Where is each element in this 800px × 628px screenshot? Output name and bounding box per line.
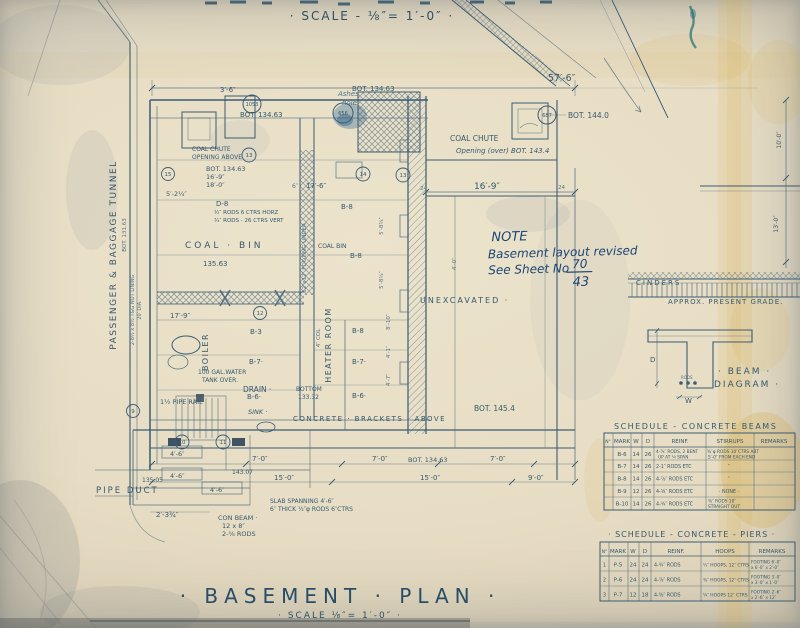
dim-57-6: 57′-6″ — [548, 73, 576, 84]
cell: ⅜″ HOOPS, 12″ CTRS — [703, 578, 749, 584]
cell: 1 — [603, 563, 606, 569]
dim-5-2: 5′-2¼″ — [166, 190, 187, 198]
cell: B-6 — [617, 452, 627, 458]
label-water1: 100 GAL.WATER — [198, 369, 246, 376]
bubble-9: 9 — [131, 409, 135, 415]
dim-4-6-b: 4′-6″ — [170, 472, 185, 480]
dim-17-9: 17′-9″ — [170, 312, 190, 320]
dim-5-8-a: 5′-8¾″ — [379, 217, 385, 235]
mark-b6-a: B-6· — [247, 393, 261, 401]
cell: B-8 — [617, 477, 627, 483]
elev-144-0: BOT. 144.0 — [568, 111, 609, 120]
cell: 4-¾″ RODS — [654, 563, 681, 569]
bubble-11: 11 — [220, 440, 227, 446]
cell: 24 — [642, 563, 649, 569]
cell: UP AT ¼ SPAN — [658, 455, 688, 461]
cell: FOOTING 2′-6″ — [751, 590, 781, 595]
piers-h-hoops: HOOPS — [715, 549, 735, 555]
piers-h-w: W — [630, 549, 636, 555]
elev-135-05: 135.05 — [142, 477, 163, 484]
label-4col: 4″ COL — [316, 328, 322, 347]
blueprint-sheet: 9 10 11 12 13 14 13 15 656 687 1053 · SC… — [0, 0, 800, 628]
label-conbeam2: 12 x 8″ — [222, 522, 245, 530]
basement-plan-drawing: 9 10 11 12 13 14 13 15 656 687 1053 · SC… — [0, 0, 800, 628]
elev-134-63-chain: BOT. 134.63 — [408, 456, 448, 464]
cell: ⅜″φ RODS 10″CTRS ABT — [707, 449, 759, 455]
dim-4-1: 4′-1″ — [386, 346, 392, 358]
piers-h-mark: MARK — [610, 549, 626, 555]
dim-24-a: 24 — [420, 186, 427, 192]
cell: · NONE · — [719, 489, 739, 495]
cell: 14 — [633, 464, 640, 470]
label-sink: SINK · — [248, 408, 267, 416]
beams-h-remarks: REMARKS — [761, 439, 788, 445]
beams-h-reinf: REINF. — [671, 439, 688, 445]
label-cinders: CINDERS — [636, 279, 681, 287]
label-slab2: 6″ THICK ½″φ RODS 6″CTRS — [270, 506, 353, 513]
label-brackets: CONCRETE · BRACKETS · ABOVE — [293, 415, 446, 423]
piers-row-2: 2 P-6 24 24 4-⅞″ RODS ⅜″ HOOPS, 12″ CTRS… — [603, 575, 781, 586]
elev-145-4: BOT. 145.4 — [474, 404, 515, 413]
elev-134-63-top: BOT. 134.63 — [352, 85, 395, 93]
label-coal-bin-small: COAL BIN — [318, 243, 347, 250]
cell: 26 — [645, 489, 652, 495]
elev-135-63: 135.63 — [203, 260, 228, 268]
dim-4-7: 4′-7″ — [386, 374, 392, 386]
cell: 4-¾″ RODS ETC — [656, 502, 694, 508]
beams-h-mark: MARK — [614, 439, 630, 445]
label-slab1: SLAB SPANNING 4′-6″ — [270, 498, 335, 505]
beam-diagram-title2: DIAGRAM · — [714, 380, 780, 390]
dim-24-b: 24 — [558, 185, 565, 191]
cell: 24 — [642, 578, 649, 584]
top-title-fragments — [205, 2, 552, 4]
cell: B-7 — [617, 464, 627, 470]
beam-diagram-w: W — [685, 397, 692, 405]
label-ashes2: hole — [342, 99, 357, 107]
piers-title: · SCHEDULE - CONCRETE - PIERS · — [608, 530, 775, 539]
label-chute2b: Opening (over) BOT. 143.4 — [456, 147, 549, 155]
note-title: NOTE — [491, 229, 528, 245]
mark-b8-a: B-8 — [341, 203, 353, 211]
label-conbeam3: 2-⅝ RODS — [222, 530, 256, 538]
label-tunnel-lining1: 2-8½ x 8½ T&G NOT LINING — [129, 275, 136, 346]
label-bottom-word: BOTTOM — [296, 386, 322, 393]
bubble-687: 687 — [542, 113, 552, 119]
cell: 4-⅞″ RODS ETC — [656, 477, 694, 483]
note-sheet-bottom: 43 — [572, 275, 589, 290]
beams-row-4: B-9 12 26 4-⅝″ RODS ETC · NONE · — [617, 489, 739, 495]
dim-16-9-b: 16′-9″ — [474, 182, 500, 192]
bubble-15: 15 — [165, 172, 172, 178]
label-rods-note2: ¾″ RODS - 26 CTRS VERT — [214, 218, 284, 224]
dim-9-0: 9′-0″ — [528, 474, 544, 482]
beams-row-5: B-10 14 26 4-¾″ RODS ETC ⅜″ RODS 10″ STR… — [616, 499, 741, 511]
dim-13-0: 13′-0″ — [773, 215, 780, 233]
piers-row-3: 3 P-7 12 18 4-⅝″ RODS ¼″ HOOPS 12″ CTRS … — [603, 590, 781, 601]
bubble-10: 10 — [179, 440, 186, 446]
label-present-grade: APPROX. PRESENT GRADE. — [668, 298, 783, 306]
cell: 4-⅞″ RODS — [654, 578, 681, 584]
cell: 2 — [603, 578, 606, 584]
beams-h-w: W — [633, 439, 639, 445]
mark-b7-a: B-7· — [249, 358, 263, 366]
dim-4-6-c: 4′-6″ — [210, 486, 225, 494]
cell: 14 — [633, 502, 640, 508]
dim-6in: 6″ — [292, 183, 299, 190]
beams-h-d: D — [646, 439, 650, 445]
dim-5-8-b: 5′-8¾″ — [379, 271, 385, 289]
cell: 4-⅝″ RODS ETC — [656, 489, 694, 495]
beams-title: SCHEDULE - CONCRETE BEAMS — [614, 422, 777, 431]
dim-2-3: 2′-3¾″ — [156, 511, 179, 519]
cell: 14 — [633, 452, 640, 458]
label-boiler: BOILER — [201, 333, 210, 371]
beams-h-no: N° — [605, 439, 611, 445]
sheet-title: · BASEMENT · PLAN · — [180, 584, 501, 608]
elev-134-63-left: BOT. 134.63 — [240, 111, 283, 119]
cell: 24 — [630, 578, 637, 584]
dim-7-0-b: 7′-0″ — [372, 455, 388, 463]
bubble-12: 12 — [257, 311, 264, 317]
label-chute1b: OPENING ABOVE — [192, 154, 242, 161]
piers-rows: 1 P-5 24 24 4-¾″ RODS ½″ HOOPS, 12″ CTRS… — [603, 560, 781, 601]
bubble-13: 13 — [246, 153, 253, 159]
bubble-13b: 13 — [400, 173, 407, 179]
elev-133-32: 133.32 — [298, 394, 319, 401]
cell: 26 — [645, 452, 652, 458]
beams-h-stirrups: STIRRUPS — [717, 439, 744, 445]
elev-143-07: 143.07 — [232, 469, 253, 476]
cell: 12 — [633, 489, 640, 495]
cell: 26 — [645, 502, 652, 508]
dim-4-6-a: 4′-6″ — [170, 450, 185, 458]
mark-b7-b: B-7· — [352, 358, 366, 366]
bubble-656: 656 — [338, 111, 348, 117]
piers-h-reinf: REINF. — [667, 549, 684, 555]
beams-row-1: B-6 14 26 4-⅞″ RODS, 2 BENT UP AT ¼ SPAN… — [617, 449, 759, 461]
cell: ½″ HOOPS, 12″ CTRS — [703, 562, 749, 569]
cell: 26 — [645, 464, 652, 470]
cell: 12 — [630, 593, 637, 599]
cell: 26 — [645, 477, 652, 483]
label-pipe-rail: 1½ PIPE RAIL — [160, 398, 203, 406]
cell: STRAIGHT OUT — [708, 504, 740, 510]
elev-134-63-mid: BOT. 134.63 — [206, 165, 246, 173]
label-tunnel-bot: BOT. 131.63 — [122, 218, 128, 252]
cell: P-7 — [614, 593, 623, 599]
cell: 3 — [603, 593, 606, 599]
cell: B-9 — [617, 489, 627, 495]
cell: ¼″ HOOPS 12″ CTRS — [703, 593, 748, 599]
cell: FOOTING 6′-0″ — [751, 560, 781, 565]
cell: B-10 — [616, 502, 629, 508]
piers-h-d: D — [643, 549, 647, 555]
piers-h-no: N° — [602, 549, 608, 555]
label-conbeam1: CON BEAM · — [218, 514, 257, 522]
label-chute1a: COAL CHUTE — [192, 146, 231, 153]
beam-diagram-rods: RODS — [681, 375, 693, 380]
sheet-title-scale: · SCALE ⅛″= 1′-0″ · — [278, 611, 402, 621]
note-line3: See Sheet No — [488, 261, 569, 277]
beam-diagram-d: D — [650, 356, 655, 364]
beams-row-3: B-8 14 26 4-⅞″ RODS ETC ″ — [617, 477, 730, 483]
sheet-scale-top: · SCALE - ⅛″= 1′-0″ · — [290, 9, 454, 23]
mark-b8-c: B-8 — [352, 327, 364, 335]
cell: P-6 — [614, 578, 623, 584]
label-tunnel-lining2: 20′ DIA. — [137, 300, 143, 320]
dim-7-0-c: 7′-0″ — [490, 455, 506, 463]
piers-h-remarks: REMARKS — [759, 549, 786, 555]
dim-15-0-a: 15′-0″ — [274, 474, 294, 482]
cell: 5′-0″ FROM EACH END — [708, 455, 756, 461]
cell: P-5 — [614, 563, 623, 569]
cell: 14 — [633, 477, 640, 483]
mark-d8: D-8 — [216, 200, 228, 208]
piers-row-1: 1 P-5 24 24 4-¾″ RODS ½″ HOOPS, 12″ CTRS… — [603, 560, 781, 571]
cell: ″ — [728, 464, 730, 470]
dim-15-0-b: 15′-0″ — [420, 474, 440, 482]
label-rods-note1: ½″ RODS 6 CTRS HORZ — [214, 209, 279, 216]
label-pipe-duct: PIPE DUCT — [96, 486, 159, 496]
label-footing-under: 12″x12″ FOOTING UNDER — [302, 223, 308, 293]
dim-7-0-a: 7′-0″ — [252, 455, 268, 463]
mark-b3: B-3 — [250, 328, 262, 336]
cell: x 2′-6″ x 12″ — [751, 595, 777, 600]
cell: 18 — [642, 593, 649, 599]
label-unexcavated: UNEXCAVATED · — [420, 296, 509, 305]
dim-17-6: 17′-6″ — [306, 182, 326, 190]
dim-16-9-a: 16′-9″ — [206, 173, 225, 181]
dim-18-0: 18′-0″ — [206, 181, 225, 189]
dim-4-0: 4′-0″ — [452, 258, 458, 270]
beam-diagram-title1: · BEAM · — [718, 367, 771, 377]
note-sheet-top: 70 — [572, 257, 588, 271]
tunnel-lines — [95, 0, 165, 542]
dim-10-0: 10′-0″ — [776, 131, 783, 149]
dim-3-6: 3′-6″ — [220, 86, 236, 94]
cell: 24 — [630, 563, 637, 569]
dim-8-10: 8′-10″ — [386, 314, 392, 330]
label-tunnel: PASSENGER & BAGGAGE TUNNEL — [109, 160, 119, 349]
mark-b8-b: B-8 — [350, 252, 362, 260]
piers-headers: N° MARK W D REINF. HOOPS REMARKS — [602, 549, 786, 555]
cell: ″ — [728, 477, 730, 483]
cell: 4-⅞″ RODS, 2 BENT — [656, 449, 699, 455]
cell: 4-⅝″ RODS — [654, 593, 681, 599]
beams-headers: N° MARK W D REINF. STIRRUPS REMARKS — [605, 439, 788, 445]
cell: ⅜″ RODS 10″ — [708, 499, 736, 505]
cell: x 3′-0″ x 1′-0″ — [751, 580, 779, 585]
label-coal-bin: COAL · BIN — [185, 241, 264, 251]
bubble-14: 14 — [360, 172, 367, 178]
label-water2: TANK OVER. — [201, 377, 238, 384]
mark-b6-b: B-6· — [352, 392, 366, 400]
cell: FOOTING 3′-0″ — [751, 575, 781, 580]
label-heater-room: HEATER ROOM — [324, 307, 333, 383]
cell: 2-1″ RODS ETC — [656, 464, 692, 470]
label-chute2a: COAL CHUTE — [450, 134, 499, 143]
bubble-1053: 1053 — [246, 102, 259, 108]
beams-row-2: B-7 14 26 2-1″ RODS ETC ″ — [617, 464, 730, 470]
cell: x 6′-0″ x 2′-0″ — [751, 565, 779, 570]
